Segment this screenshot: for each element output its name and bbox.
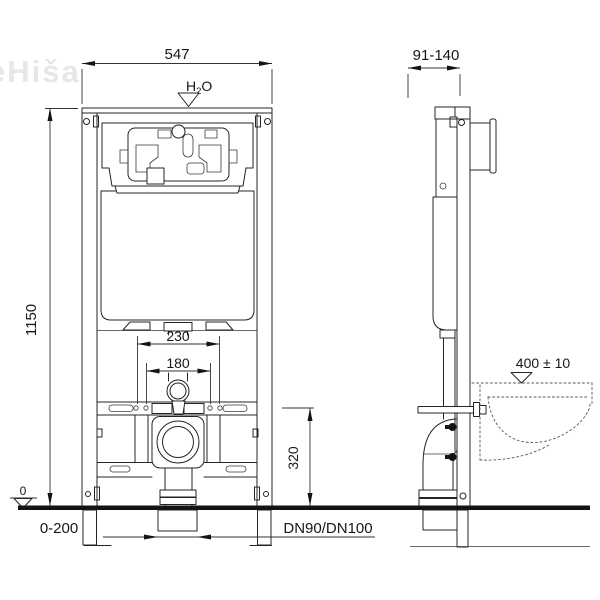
clamp-bolt-upper — [449, 423, 457, 431]
side-drain-elbow — [419, 419, 457, 530]
side-drain-below-floor — [423, 510, 457, 530]
mounting-rod — [418, 403, 486, 417]
floor-zero-marker: 0 — [10, 484, 37, 508]
water-supply-marker-icon — [178, 93, 199, 107]
cistern-clip-detail — [440, 183, 446, 189]
drain-pipe-below-floor — [158, 510, 197, 531]
water-supply-marker: H2O — [178, 78, 212, 107]
side-frame-hole-bottom — [460, 493, 466, 499]
dim-320: 320 — [282, 408, 314, 506]
frame-hole-top-left — [84, 119, 90, 125]
dim-547-label: 547 — [164, 46, 189, 63]
dim-400: 400 ± 10 — [511, 355, 570, 383]
drain-assembly — [152, 417, 204, 532]
flush-plate-bracket — [102, 123, 253, 193]
support-bar-left — [135, 415, 148, 463]
frame-hole-top-right — [265, 119, 271, 125]
side-frame-hole-top — [459, 120, 465, 126]
dim-320-label: 320 — [285, 446, 301, 470]
drain-size-label: DN90/DN100 — [283, 520, 372, 537]
frame-hole-bottom-right — [264, 492, 269, 497]
side-frame-leg — [457, 510, 468, 547]
technical-drawing-svg: eHiša — [0, 0, 600, 600]
support-bar-right — [207, 415, 220, 463]
front-view: 547 H2O 1150 230 — [10, 46, 375, 546]
leg-adjust-range-label: 0-200 — [40, 520, 78, 537]
dim-depth-label: 91-140 — [413, 47, 460, 64]
side-cistern — [433, 119, 457, 451]
dim-547: 547 — [82, 46, 272, 104]
dim-180-label: 180 — [166, 355, 190, 371]
clamp-bolt-lower — [449, 453, 457, 461]
bowl-height-marker-icon — [511, 373, 532, 384]
water-connection-bracket — [470, 119, 496, 173]
dim-bowl-height-label: 400 ± 10 — [516, 355, 571, 371]
watermark-text: eHiša — [0, 54, 81, 89]
dim-230-label: 230 — [166, 328, 190, 344]
dim-1150: 1150 — [23, 108, 78, 506]
toilet-bowl-ghost-outline — [472, 383, 592, 460]
dim-1150-label: 1150 — [23, 304, 40, 336]
frame-hole-bottom-left — [86, 492, 91, 497]
floor-zero-label: 0 — [20, 484, 27, 498]
side-view: 91-140 — [408, 47, 592, 547]
floor-line — [18, 506, 590, 511]
dim-91-140: 91-140 — [408, 47, 460, 98]
cistern-tank — [97, 191, 257, 381]
installation-frame-diagram: eHiša — [0, 0, 600, 600]
